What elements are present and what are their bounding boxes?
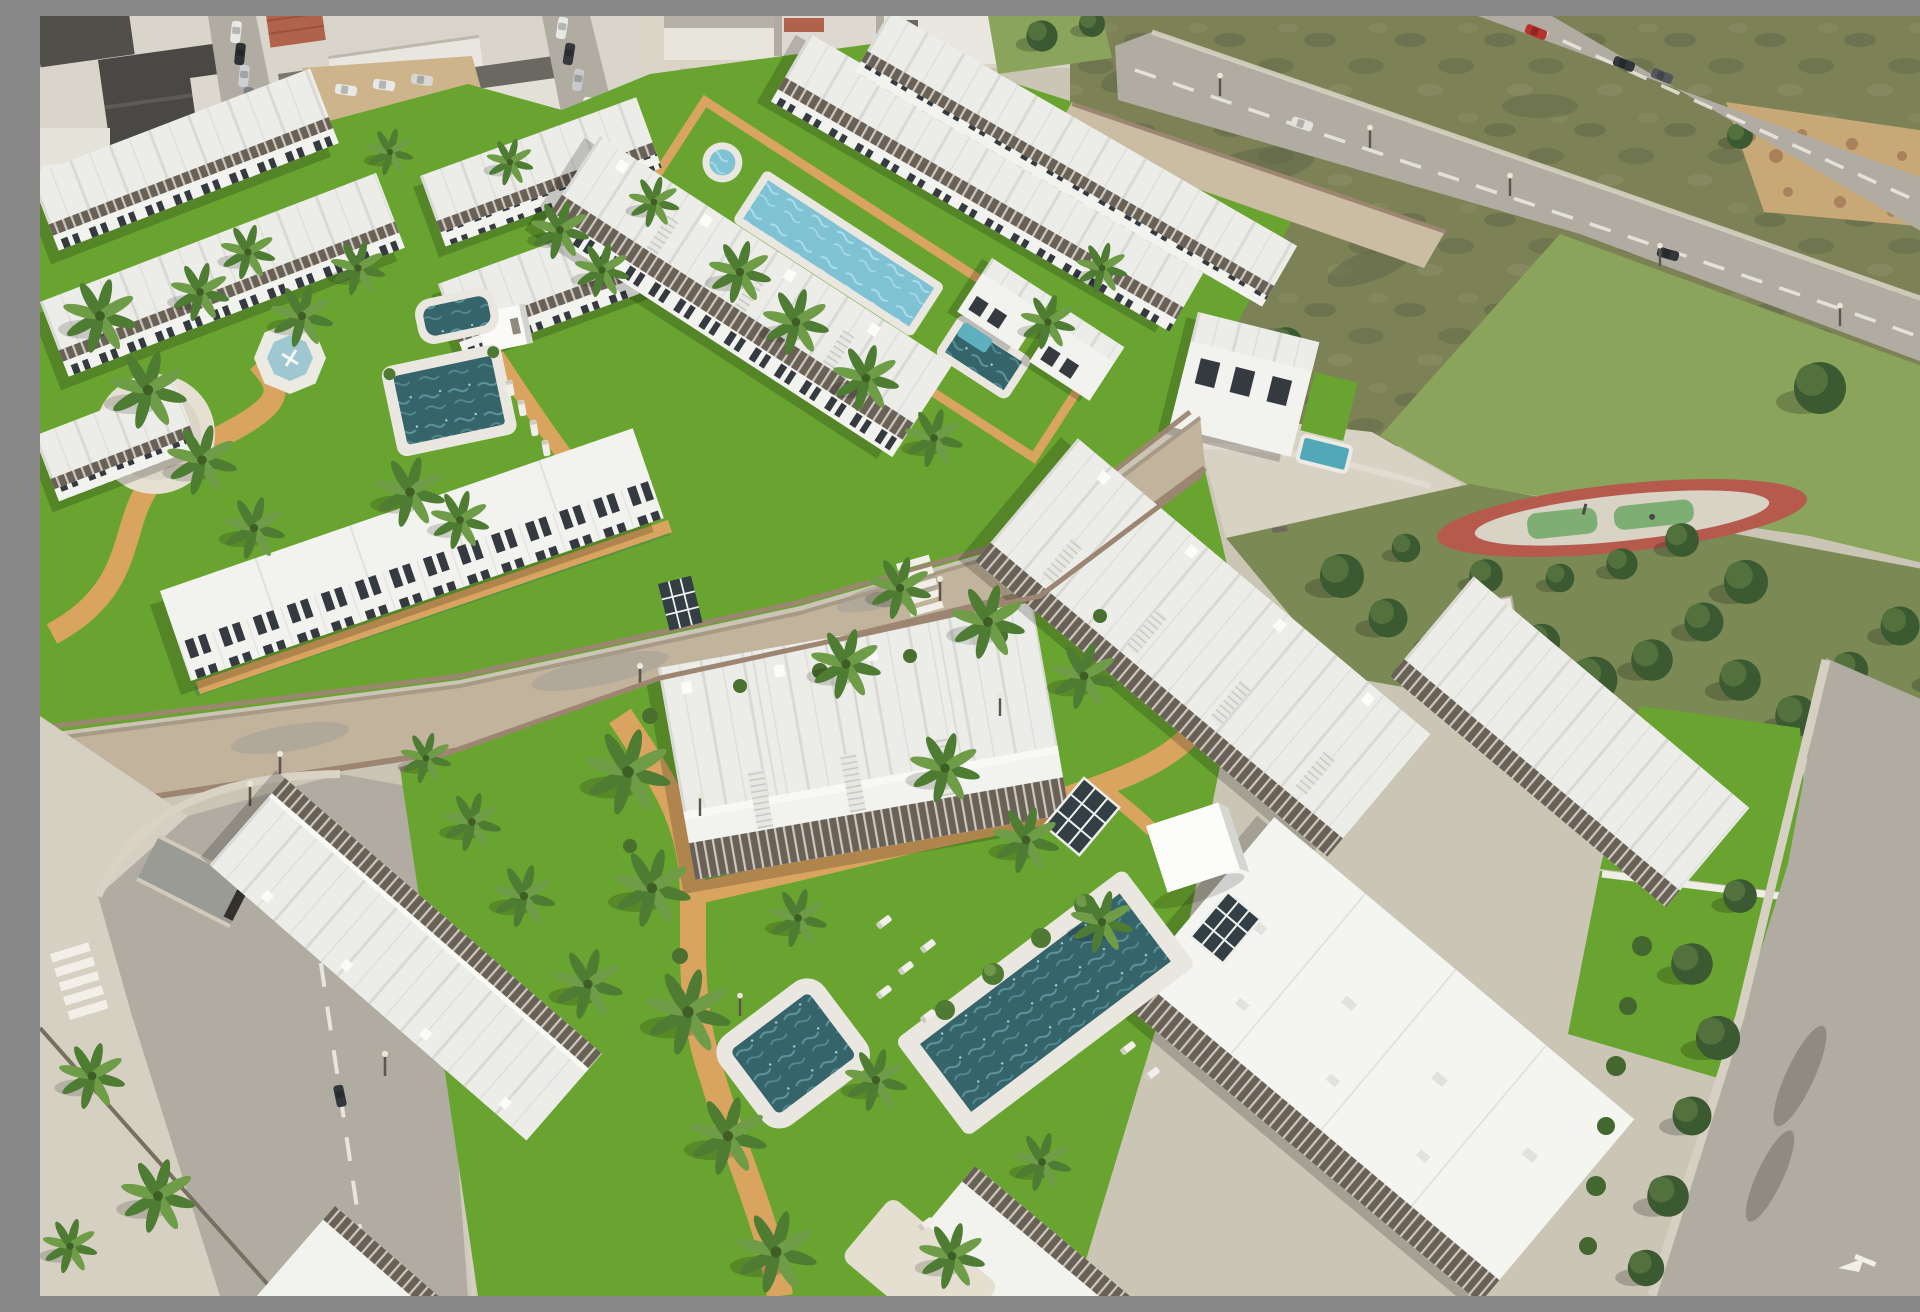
chimney: [681, 681, 693, 695]
planter-bush: [935, 1000, 955, 1020]
town-roof-edge: [664, 16, 774, 28]
aerial-screenshot-svg: Aerial 3D render of a new-build resident…: [40, 16, 1920, 1296]
planter-bush: [1031, 928, 1051, 948]
aerial-render-figure: Aerial 3D render of a new-build resident…: [40, 16, 1920, 1296]
chimney: [773, 664, 785, 678]
terracotta-roof: [784, 18, 824, 32]
scrub-blotch: [1502, 94, 1578, 118]
planter-bush-highlight: [984, 964, 996, 976]
alley: [774, 16, 782, 56]
